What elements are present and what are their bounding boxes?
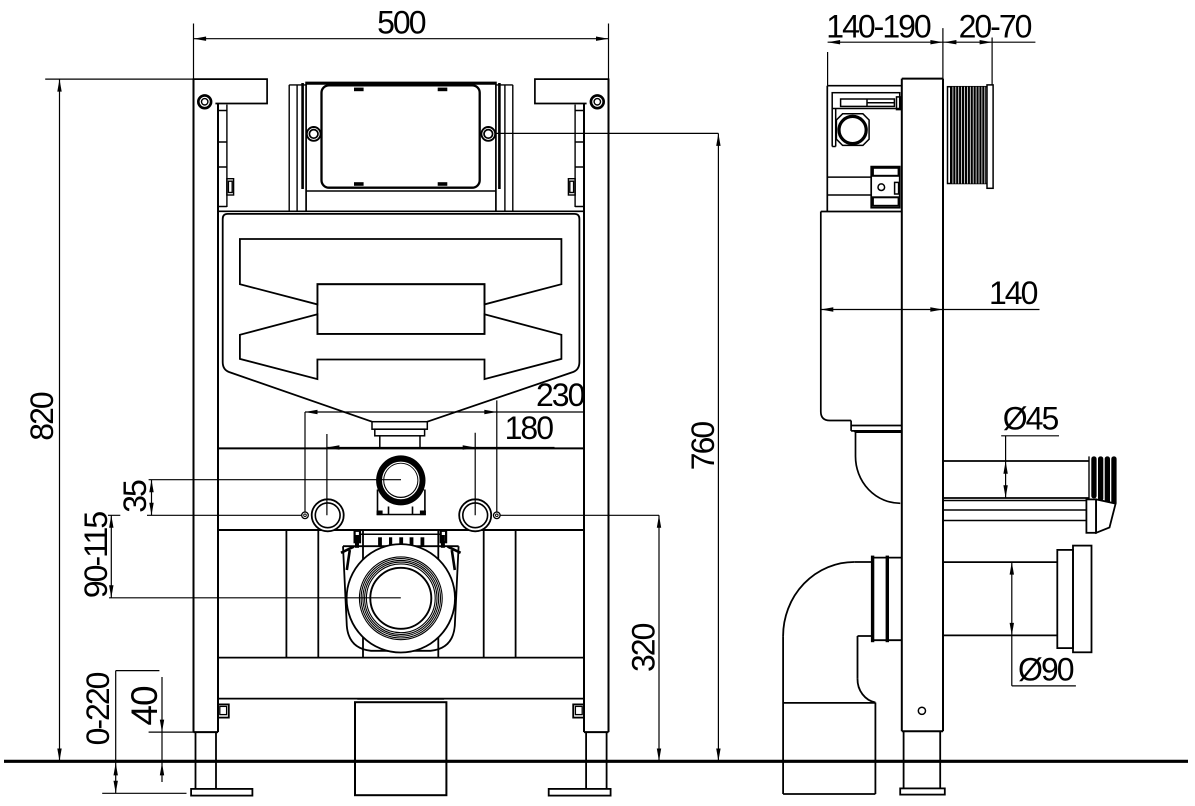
svg-text:180: 180 <box>505 410 554 446</box>
svg-text:820: 820 <box>24 392 60 441</box>
svg-text:760: 760 <box>685 422 721 471</box>
svg-text:230: 230 <box>536 377 585 413</box>
svg-text:90-115: 90-115 <box>78 512 114 598</box>
svg-text:500: 500 <box>377 5 426 41</box>
svg-text:320: 320 <box>625 623 661 672</box>
svg-text:35: 35 <box>117 480 153 513</box>
svg-text:140: 140 <box>989 275 1038 311</box>
svg-text:20-70: 20-70 <box>959 9 1032 45</box>
svg-text:Ø90: Ø90 <box>1018 651 1074 687</box>
svg-text:Ø45: Ø45 <box>1003 401 1059 437</box>
svg-text:0-220: 0-220 <box>80 672 116 745</box>
svg-text:40: 40 <box>124 686 165 726</box>
svg-text:140-190: 140-190 <box>826 9 931 45</box>
